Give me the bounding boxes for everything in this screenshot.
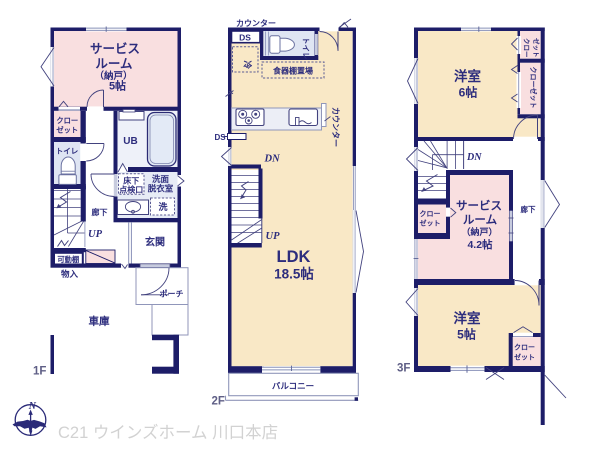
svg-text:C21 ウインズホーム 川口本店: C21 ウインズホーム 川口本店 (58, 423, 278, 442)
svg-text:DN: DN (466, 152, 482, 163)
svg-text:18.5帖: 18.5帖 (274, 266, 314, 282)
svg-text:トイレ: トイレ (302, 37, 311, 60)
svg-text:廊下: 廊下 (92, 207, 108, 217)
svg-text:玄関: 玄関 (145, 236, 165, 249)
svg-text:ポーチ: ポーチ (160, 289, 184, 299)
svg-text:バルコニー: バルコニー (272, 381, 314, 391)
svg-text:洋室: 洋室 (454, 68, 481, 84)
svg-text:（納戸）: （納戸） (461, 226, 497, 237)
svg-text:床下: 床下 (123, 176, 139, 186)
svg-text:サービス: サービス (456, 199, 502, 213)
svg-text:ゼット: ゼット (514, 353, 535, 362)
svg-text:サービス: サービス (90, 41, 140, 56)
svg-text:DS: DS (215, 133, 227, 142)
svg-text:4.2帖: 4.2帖 (467, 238, 493, 251)
svg-text:ゼット: ゼット (56, 126, 78, 135)
svg-text:食器棚置場: 食器棚置場 (273, 66, 313, 76)
svg-text:DN: DN (264, 154, 281, 165)
svg-text:洗面: 洗面 (152, 174, 170, 184)
svg-text:UP: UP (266, 231, 281, 242)
svg-text:クロー: クロー (420, 209, 441, 218)
svg-text:クローゼット: クローゼット (529, 67, 538, 109)
svg-text:2F: 2F (212, 396, 225, 408)
svg-text:5帖: 5帖 (109, 79, 126, 93)
svg-text:物入: 物入 (61, 269, 79, 279)
svg-text:クロー: クロー (523, 38, 532, 58)
svg-text:LDK: LDK (277, 248, 311, 266)
svg-text:廊下: 廊下 (521, 204, 536, 214)
svg-text:可動棚: 可動棚 (57, 255, 79, 264)
svg-text:洋室: 洋室 (454, 310, 481, 326)
svg-text:洗: 洗 (158, 201, 167, 212)
svg-text:ゼット: ゼット (420, 219, 441, 228)
svg-text:冷: 冷 (243, 61, 253, 70)
svg-text:カウンター: カウンター (331, 107, 341, 147)
svg-text:N: N (28, 401, 37, 412)
svg-text:3F: 3F (397, 363, 410, 375)
svg-text:車庫: 車庫 (89, 315, 110, 328)
svg-text:クロー: クロー (514, 343, 535, 352)
svg-text:ルーム: ルーム (95, 57, 133, 71)
svg-text:点検口: 点検口 (119, 185, 143, 195)
svg-text:ルーム: ルーム (463, 214, 498, 227)
svg-text:5帖: 5帖 (457, 327, 476, 342)
svg-text:ゼット: ゼット (532, 38, 541, 58)
svg-text:1F: 1F (33, 366, 46, 378)
svg-text:UP: UP (88, 229, 103, 240)
svg-text:DS: DS (239, 33, 251, 43)
svg-text:6帖: 6帖 (459, 85, 478, 100)
svg-text:UB: UB (123, 136, 137, 147)
svg-text:トイレ: トイレ (56, 147, 79, 156)
svg-text:脱衣室: 脱衣室 (148, 184, 174, 194)
svg-text:カウンター: カウンター (236, 18, 276, 28)
svg-text:クロー: クロー (56, 116, 78, 125)
